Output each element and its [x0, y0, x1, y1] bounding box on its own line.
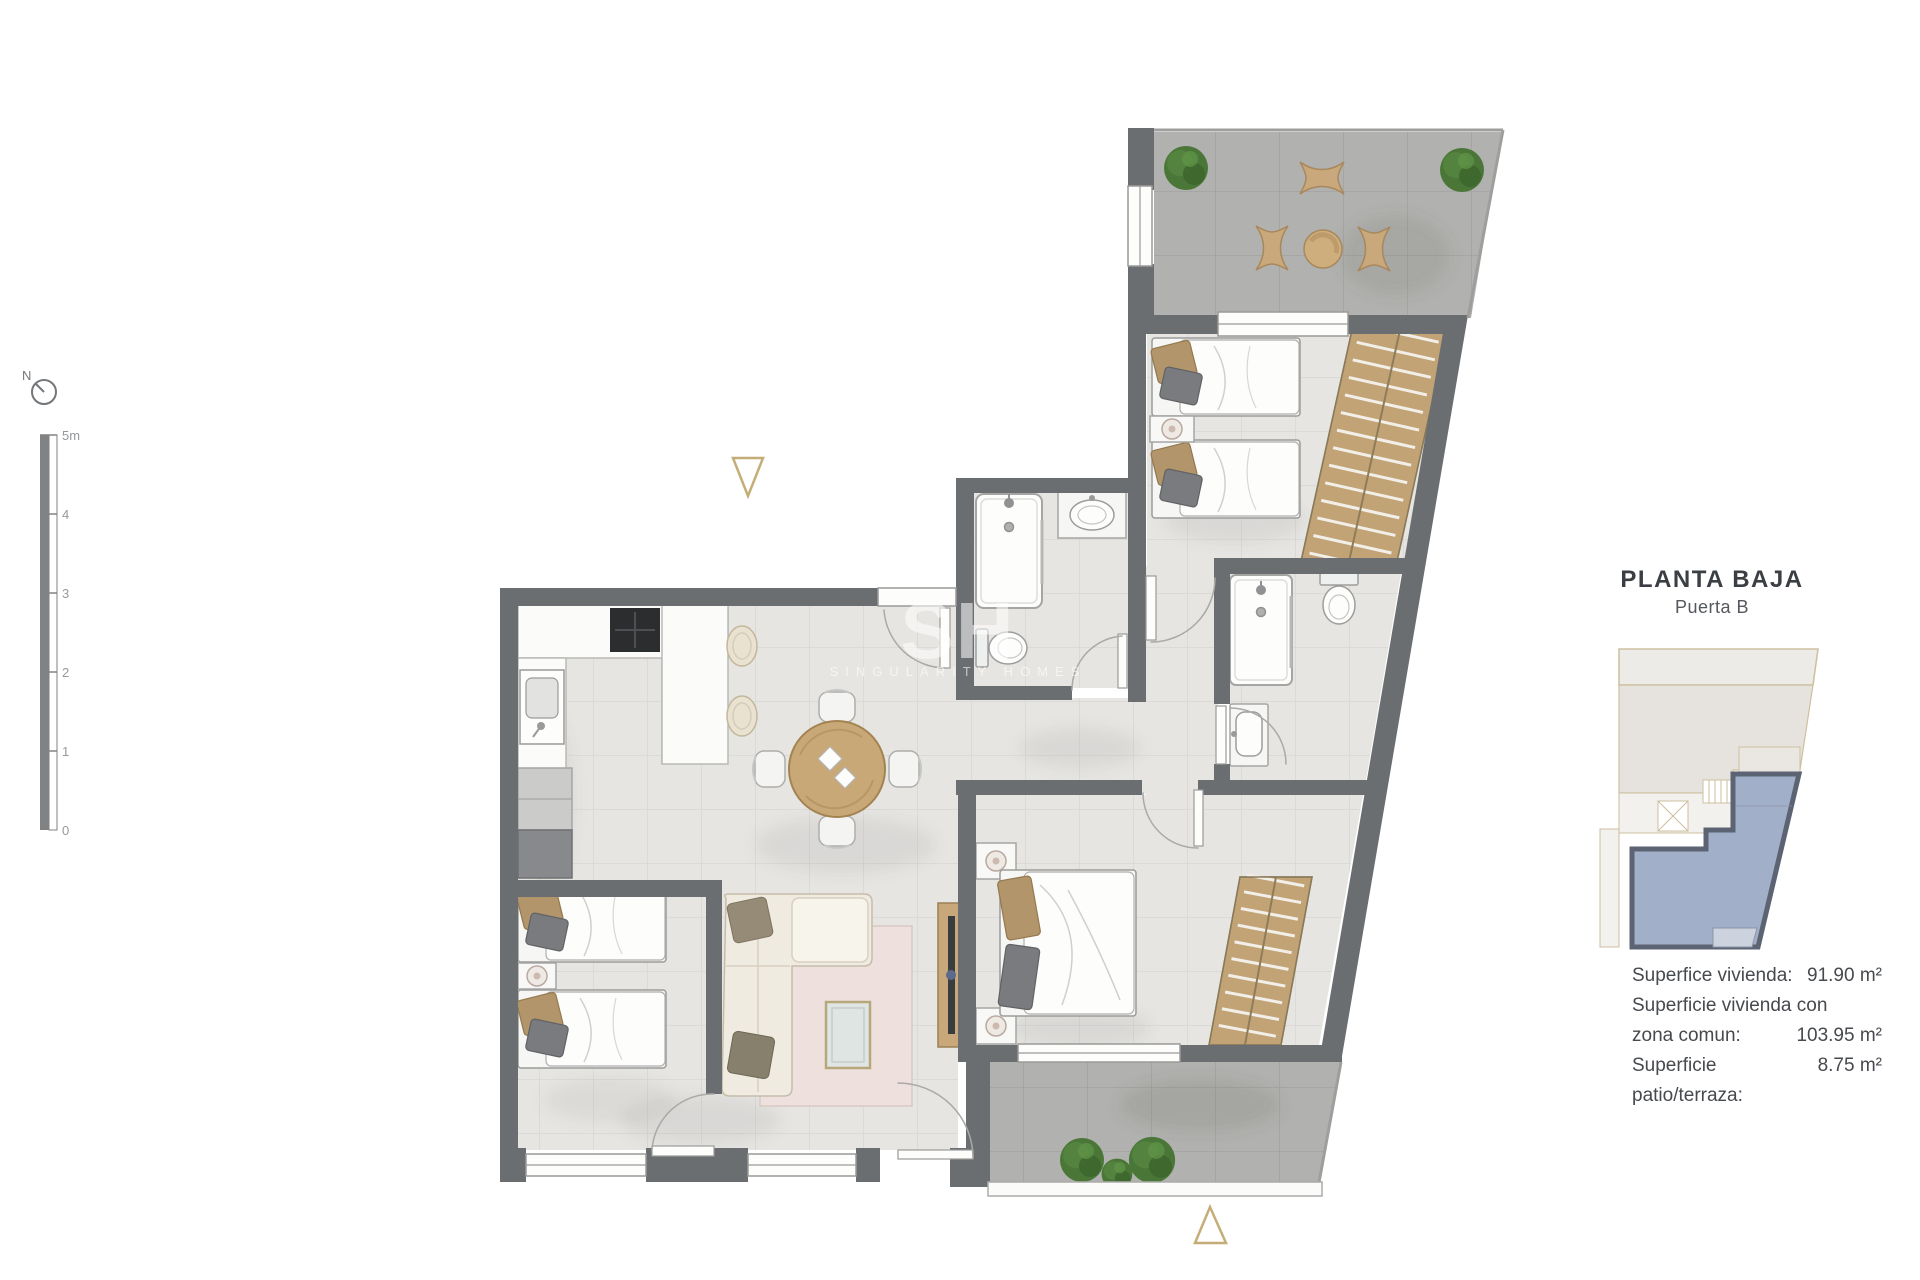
window: [1128, 186, 1152, 266]
scale-bar: 5m 4 3 2 1 0: [40, 428, 80, 838]
lamp-icon: [1162, 419, 1182, 439]
toilet-icon: [1320, 573, 1358, 624]
sofa-pillow: [726, 896, 773, 943]
floor-plan-page: SH SINGULARITY HOMES N 5m 4 3 2 1 0: [0, 0, 1920, 1280]
window: [1018, 1044, 1180, 1062]
scale-tick: 5m: [62, 428, 80, 443]
scale-tick: 3: [62, 586, 69, 601]
chair: [753, 751, 785, 787]
double-bed: [997, 870, 1136, 1016]
sink-icon: [1058, 492, 1126, 538]
lamp-icon: [527, 966, 547, 986]
fridge: [518, 830, 572, 878]
kitchen-island: [662, 604, 728, 764]
plant-icon: [1440, 148, 1484, 192]
stool: [727, 696, 757, 736]
scale-tick: 4: [62, 507, 69, 522]
single-bed: [516, 990, 666, 1068]
area-label: Superfice vivienda:: [1632, 961, 1793, 991]
area-value: 91.90 m²: [1807, 961, 1882, 991]
area-label: zona comun:: [1632, 1021, 1741, 1051]
coffee-table: [826, 1002, 870, 1068]
title-block: PLANTA BAJA Puerta B: [1562, 566, 1862, 618]
stool: [727, 626, 757, 666]
section-marker-bottom: [1195, 1207, 1226, 1243]
plant-icon: [1060, 1138, 1104, 1182]
patio-parapet: [988, 1182, 1322, 1196]
sofa-pillow: [727, 1031, 776, 1080]
window: [748, 1154, 856, 1176]
area-value: 103.95 m²: [1796, 1021, 1882, 1051]
elevator-icon: [1658, 801, 1688, 831]
plant-icon: [1164, 146, 1208, 190]
scale-tick: 2: [62, 665, 69, 680]
chair: [889, 751, 921, 787]
area-row: Superficie patio/terraza: 8.75 m²: [1632, 1051, 1882, 1111]
compass-icon: N: [22, 368, 56, 404]
area-row: Superfice vivienda: 91.90 m²: [1632, 961, 1882, 991]
scale-tick: 0: [62, 823, 69, 838]
key-plan: [1600, 649, 1818, 947]
window: [1218, 312, 1348, 336]
watermark-name: SINGULARITY HOMES: [830, 664, 1087, 679]
area-label: Superficie vivienda con: [1632, 991, 1827, 1021]
area-summary: Superfice vivienda: 91.90 m² Superficie …: [1632, 961, 1882, 1111]
plant-icon: [1129, 1137, 1175, 1183]
scale-tick: 1: [62, 744, 69, 759]
sink-icon: [1230, 704, 1268, 766]
area-row: zona comun: 103.95 m²: [1632, 1021, 1882, 1051]
page-title: PLANTA BAJA: [1562, 566, 1862, 594]
page-subtitle: Puerta B: [1562, 597, 1862, 618]
area-label: Superficie patio/terraza:: [1632, 1051, 1818, 1111]
chair: [819, 816, 855, 848]
area-row: Superficie vivienda con: [1632, 991, 1882, 1021]
lamp-icon: [986, 851, 1006, 871]
dining-table: [789, 721, 885, 817]
lamp-icon: [986, 1016, 1006, 1036]
single-bed: [1150, 338, 1300, 416]
chair: [819, 690, 855, 722]
stairs-icon: [1703, 780, 1733, 803]
watermark-initials: SH: [900, 586, 1015, 675]
window: [526, 1154, 646, 1176]
shower-icon: [1230, 575, 1292, 685]
compass-label: N: [22, 368, 31, 383]
section-marker-top: [733, 458, 763, 496]
single-bed: [1150, 440, 1300, 518]
kitchen-sink-icon: [520, 670, 564, 744]
hallway-floor: [1146, 566, 1218, 796]
area-value: 8.75 m²: [1818, 1051, 1882, 1111]
